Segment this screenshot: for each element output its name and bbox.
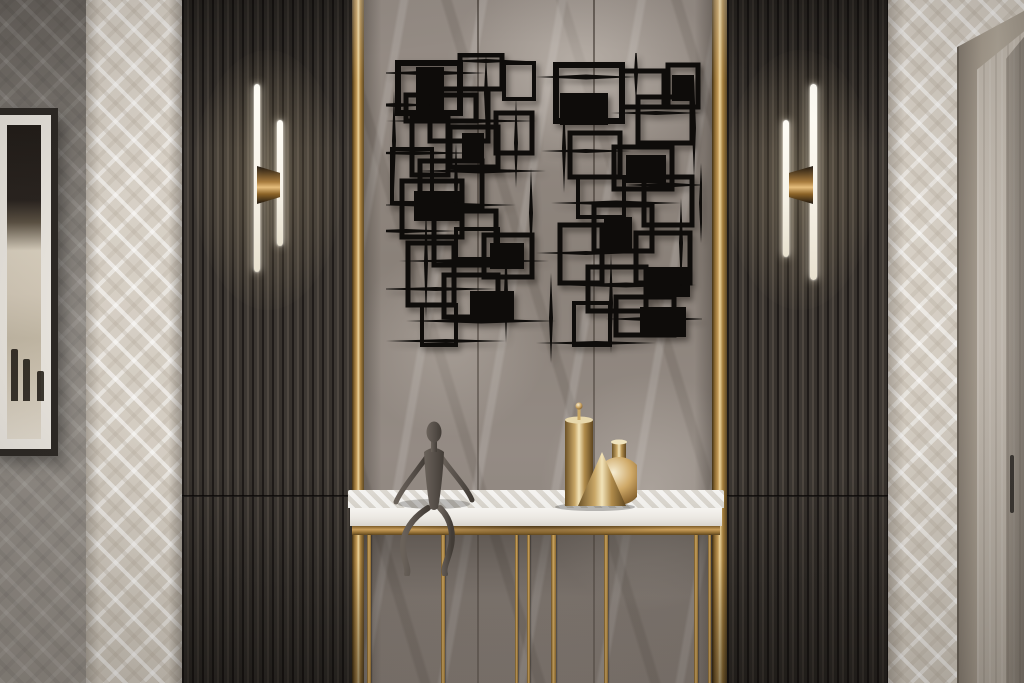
figurine-right-leg bbox=[440, 508, 452, 574]
panel-seam bbox=[182, 495, 352, 497]
art-tapered-spike bbox=[386, 339, 506, 343]
panel-seam bbox=[727, 495, 888, 497]
vase-finial-stem bbox=[578, 408, 581, 420]
art-rectangle bbox=[560, 93, 608, 125]
left-grey-wall bbox=[0, 0, 86, 683]
art-rectangle bbox=[640, 307, 686, 337]
art-rectangle bbox=[496, 113, 532, 153]
art-rectangle bbox=[622, 71, 664, 107]
art-tapered-spike bbox=[549, 273, 553, 363]
vase-finial-ball bbox=[576, 403, 583, 410]
art-tapered-spike bbox=[386, 287, 496, 291]
art-rectangle bbox=[604, 217, 632, 251]
abstract-metal-wall-art bbox=[386, 53, 702, 373]
art-tapered-spike bbox=[424, 208, 428, 318]
figurine-neck bbox=[431, 441, 437, 452]
figurine-right-arm bbox=[442, 458, 472, 500]
sconce-led-bar bbox=[783, 120, 789, 257]
art-rectangle bbox=[422, 305, 456, 345]
sitting-figurine-sculpture bbox=[388, 416, 480, 576]
figurine-left-arm bbox=[396, 458, 426, 502]
art-rectangle bbox=[578, 177, 624, 217]
door-inner-edge bbox=[1006, 0, 1024, 683]
art-rectangle bbox=[648, 267, 690, 297]
greek-key-wallpaper-left bbox=[86, 0, 182, 683]
art-tapered-spike bbox=[399, 259, 549, 264]
gold-trim-right bbox=[712, 0, 727, 683]
art-rectangle bbox=[504, 63, 534, 99]
art-tapered-spike bbox=[386, 151, 474, 155]
picture-frame bbox=[0, 108, 58, 456]
figurine-left-leg bbox=[403, 508, 428, 574]
art-tapered-spike bbox=[536, 341, 656, 345]
art-tapered-spike bbox=[406, 319, 556, 324]
door-handle bbox=[1010, 455, 1014, 513]
art-tapered-spike bbox=[699, 163, 702, 243]
art-rectangle bbox=[490, 243, 524, 269]
art-rectangle bbox=[462, 133, 484, 161]
gold-trim-left bbox=[352, 0, 364, 683]
artwork-figure-silhouette bbox=[11, 349, 18, 401]
artwork-figure-silhouette bbox=[37, 371, 44, 401]
art-tapered-spike bbox=[386, 229, 456, 233]
framed-artwork bbox=[7, 125, 41, 439]
gold-vases bbox=[553, 396, 637, 514]
entryway-photo bbox=[0, 0, 1024, 683]
art-tapered-spike bbox=[606, 317, 702, 322]
figurine-head bbox=[427, 422, 442, 443]
artwork-figure-silhouette bbox=[23, 359, 30, 401]
art-tapered-spike bbox=[551, 201, 681, 206]
